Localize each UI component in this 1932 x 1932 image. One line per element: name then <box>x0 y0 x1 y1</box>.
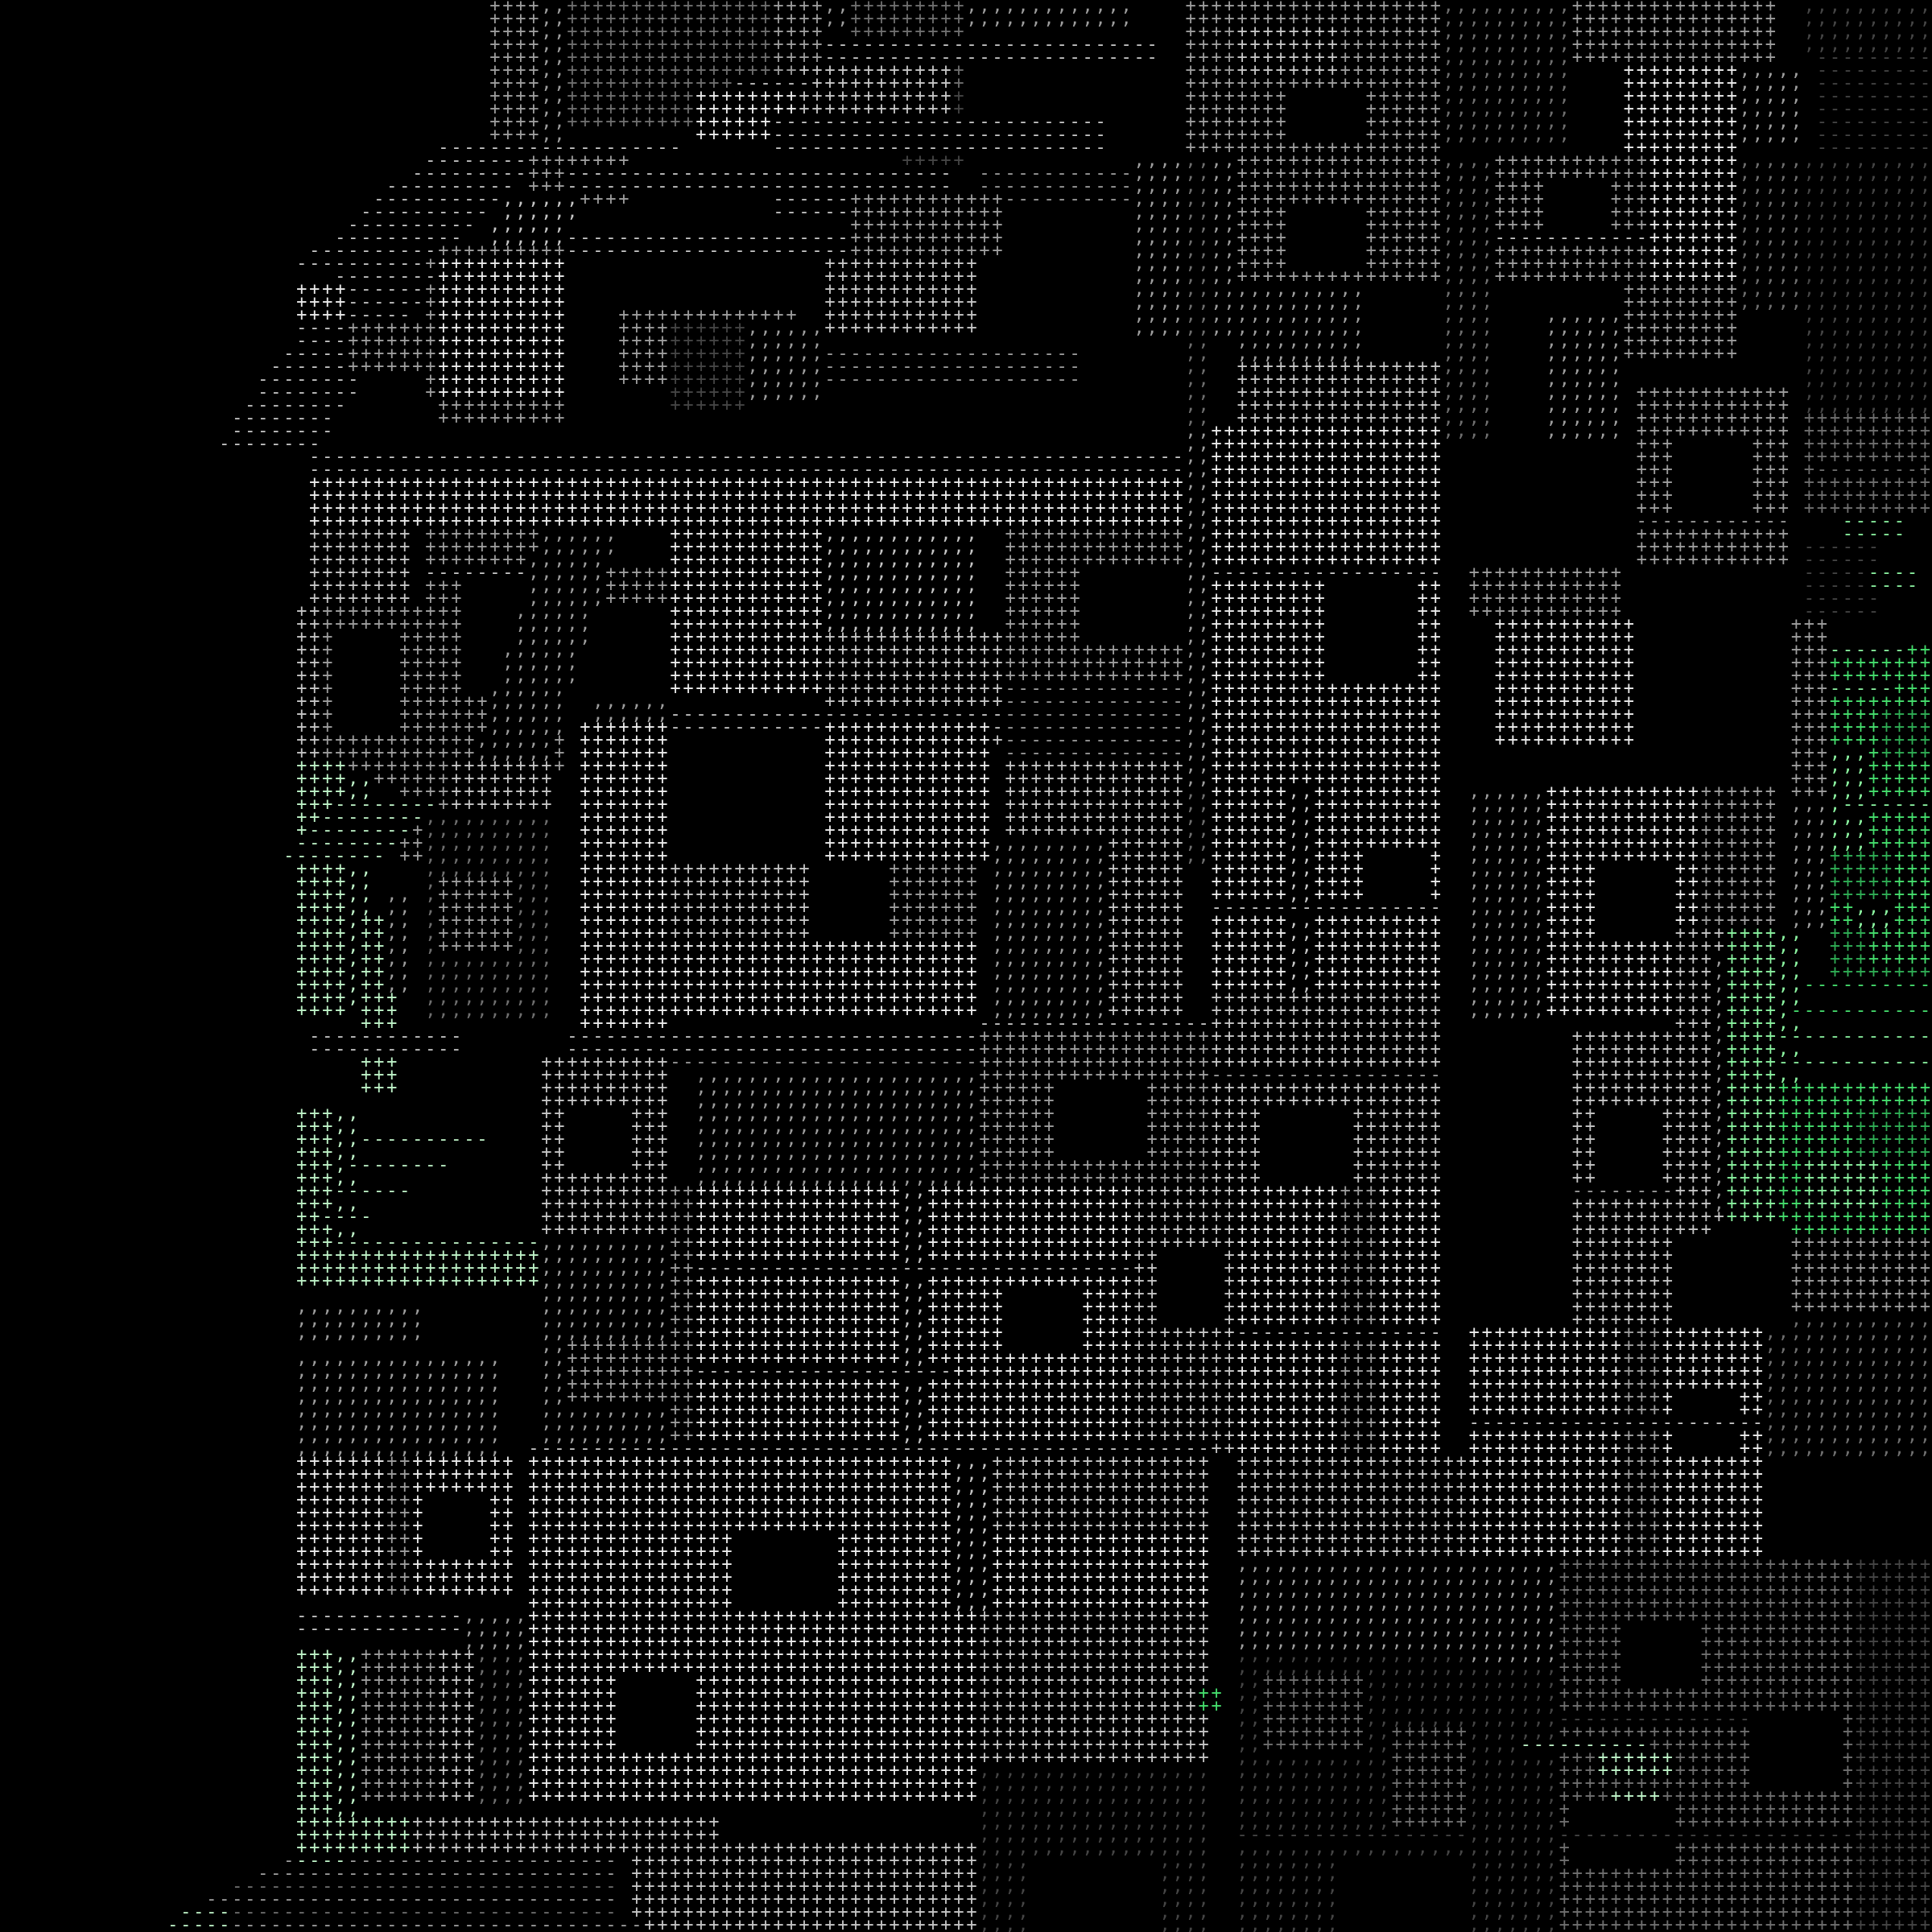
glyph-run: ,,,, <box>979 1915 1030 1932</box>
glyph-run: ,,,, <box>1160 1915 1212 1932</box>
ascii-art: ++++,,++++++++++++++++++++,,+++++++++,,,… <box>0 0 1932 1932</box>
glyph-run: -------------------------------- <box>232 1915 644 1932</box>
glyph-run: ,,,,,,, <box>1469 1915 1559 1932</box>
ascii-render-viewport: ++++,,++++++++++++++++++++,,+++++++++,,,… <box>0 0 1932 1932</box>
glyph-run: ,,,,,,,, <box>1237 1915 1340 1932</box>
glyph-run: ----- <box>167 1915 232 1932</box>
glyph-run: ++++++ <box>1856 1915 1932 1932</box>
glyph-run: ++++++++++++++++++++++++++ <box>644 1915 979 1932</box>
glyph-run: +++++++++++++++++++++++ <box>1559 1915 1856 1932</box>
ascii-row: -------------------------------------+++… <box>0 1919 1932 1932</box>
